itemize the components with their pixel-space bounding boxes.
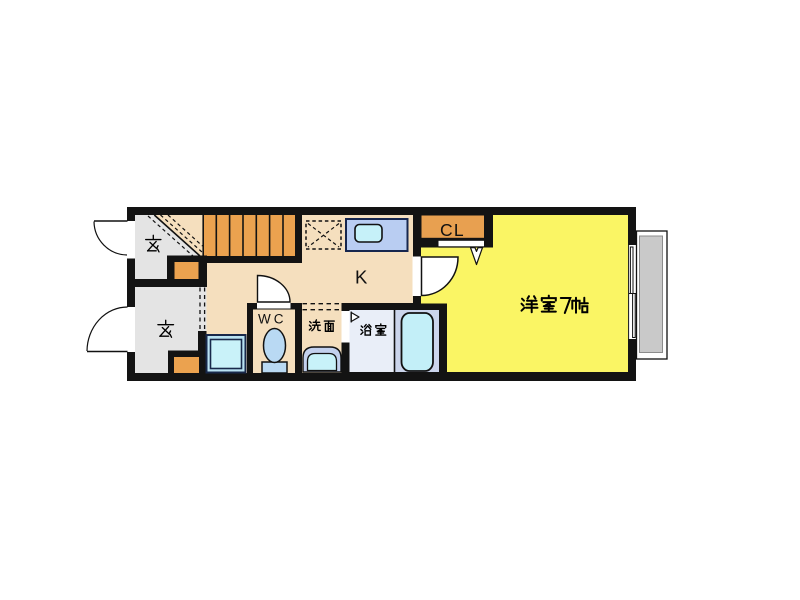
svg-text:K: K — [355, 267, 368, 288]
svg-text:WC: WC — [258, 312, 287, 327]
svg-text:CL: CL — [440, 220, 465, 240]
